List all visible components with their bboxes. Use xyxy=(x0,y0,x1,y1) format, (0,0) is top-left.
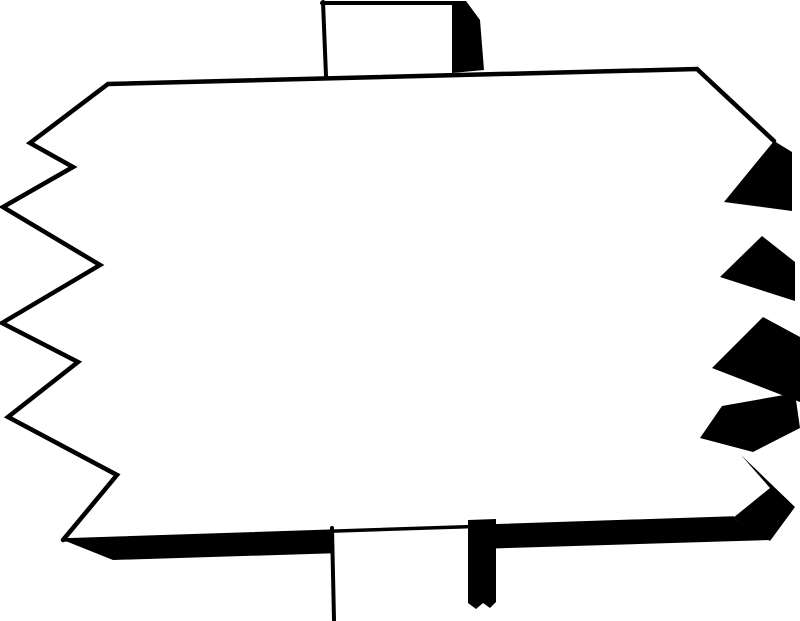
top-post-shadow xyxy=(452,1,484,73)
bottom-post-shadow xyxy=(468,519,496,609)
bottom-post-left-line xyxy=(332,528,334,620)
sign-board-face xyxy=(2,69,774,540)
signpost-drawing xyxy=(0,0,800,621)
top-post-face xyxy=(322,1,452,77)
bottom-post-face xyxy=(332,519,468,621)
signpost-clipart xyxy=(0,0,800,621)
